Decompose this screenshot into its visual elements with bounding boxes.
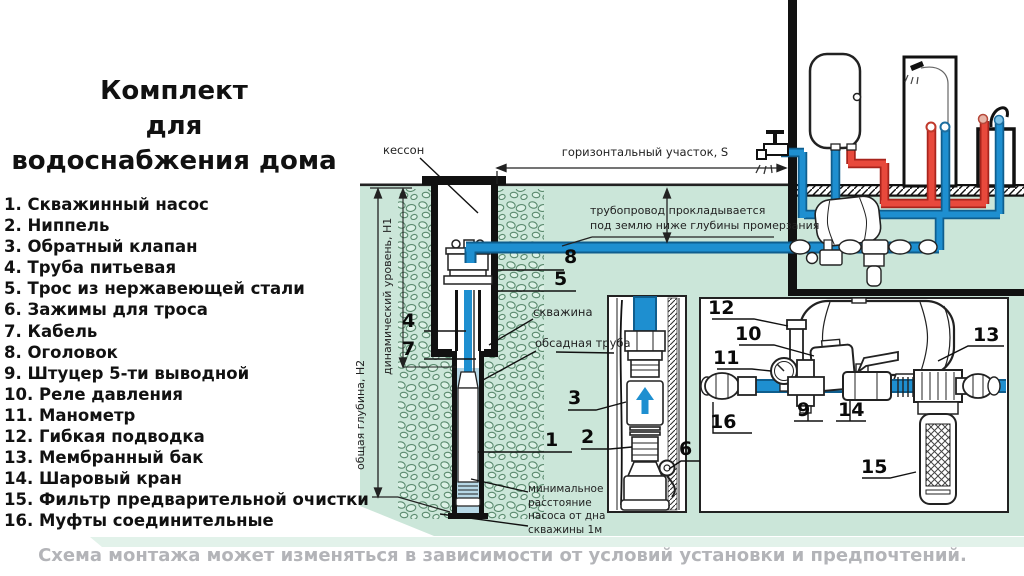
callout-4: 4 (402, 312, 415, 331)
callout-2: 2 (581, 428, 594, 447)
footer-caption: Схема монтажа может изменяться в зависим… (0, 545, 1005, 566)
callout-14: 14 (838, 401, 864, 420)
title-line: для (0, 109, 348, 144)
sink-cold-handle (995, 116, 1004, 125)
dimension-s (497, 165, 786, 185)
cable-clamp (660, 461, 675, 476)
coupling-right (956, 374, 1000, 398)
callout-9: 9 (797, 401, 810, 420)
callout-12: 12 (708, 299, 734, 318)
parts-list-item: 7. Кабель (4, 321, 369, 342)
parts-list-item: 12. Гибкая подводка (4, 426, 369, 447)
parts-list-item: 11. Манометр (4, 405, 369, 426)
callout-11: 11 (713, 349, 739, 368)
parts-list-item: 10. Реле давления (4, 384, 369, 405)
callout-13: 13 (973, 326, 999, 345)
parts-list-item: 9. Штуцер 5-ти выводной (4, 363, 369, 384)
page-title: Комплект для водоснабжения дома (0, 74, 348, 179)
parts-list-item: 16. Муфты соединительные (4, 510, 369, 531)
parts-list-item: 3. Обратный клапан (4, 236, 369, 257)
water-heater (810, 54, 861, 150)
parts-list-item: 6. Зажимы для троса (4, 299, 369, 320)
callout-7: 7 (402, 340, 415, 359)
shower-cold-valve (941, 123, 950, 132)
label-dynamic-level: динамический уровень, Н1 (381, 195, 394, 375)
submersible-pump (456, 372, 480, 506)
callout-10: 10 (735, 325, 761, 344)
title-line: водоснабжения дома (0, 144, 348, 179)
parts-list-item: 4. Труба питьевая (4, 257, 369, 278)
label-kesson: кессон (383, 143, 424, 157)
callout-6: 6 (679, 440, 692, 459)
callout-5: 5 (554, 270, 567, 289)
parts-list-item: 5. Трос из нержавеющей стали (4, 278, 369, 299)
callout-16: 16 (710, 413, 736, 432)
label-frost-note-1: трубопровод прокладывается (590, 204, 765, 217)
callout-15: 15 (861, 458, 887, 477)
label-horizontal-section: горизонтальный участок, S (500, 145, 790, 159)
label-min-distance: минимальное расстояние насоса от дна скв… (528, 483, 623, 537)
prefilter (914, 370, 962, 504)
label-borehole: скважина (533, 305, 593, 319)
callout-3: 3 (568, 389, 581, 408)
parts-list-item: 1. Скважинный насос (4, 194, 369, 215)
parts-list: 1. Скважинный насос 2. Ниппель 3. Обратн… (4, 194, 369, 532)
pipe-detail (634, 297, 656, 331)
drop-pipe (464, 290, 472, 374)
parts-list-item: 15. Фильтр предварительной очистки (4, 489, 369, 510)
title-line: Комплект (0, 74, 348, 109)
parts-list-item: 14. Шаровый кран (4, 468, 369, 489)
sink-hot-handle (979, 115, 988, 124)
shower-hot-valve (927, 123, 936, 132)
parts-list-item: 2. Ниппель (4, 215, 369, 236)
label-casing: обсадная труба (535, 336, 631, 350)
infographic-page: Комплект для водоснабжения дома 1. Скваж… (0, 0, 1024, 576)
label-total-depth: общая глубина, Н2 (354, 250, 367, 470)
coupling-left (701, 373, 756, 399)
callout-8: 8 (564, 248, 577, 267)
parts-list-item: 8. Оголовок (4, 342, 369, 363)
callout-1: 1 (545, 431, 558, 450)
parts-list-item: 13. Мембранный бак (4, 447, 369, 468)
label-frost-note-2: под землю ниже глубины промерзания (590, 219, 819, 232)
